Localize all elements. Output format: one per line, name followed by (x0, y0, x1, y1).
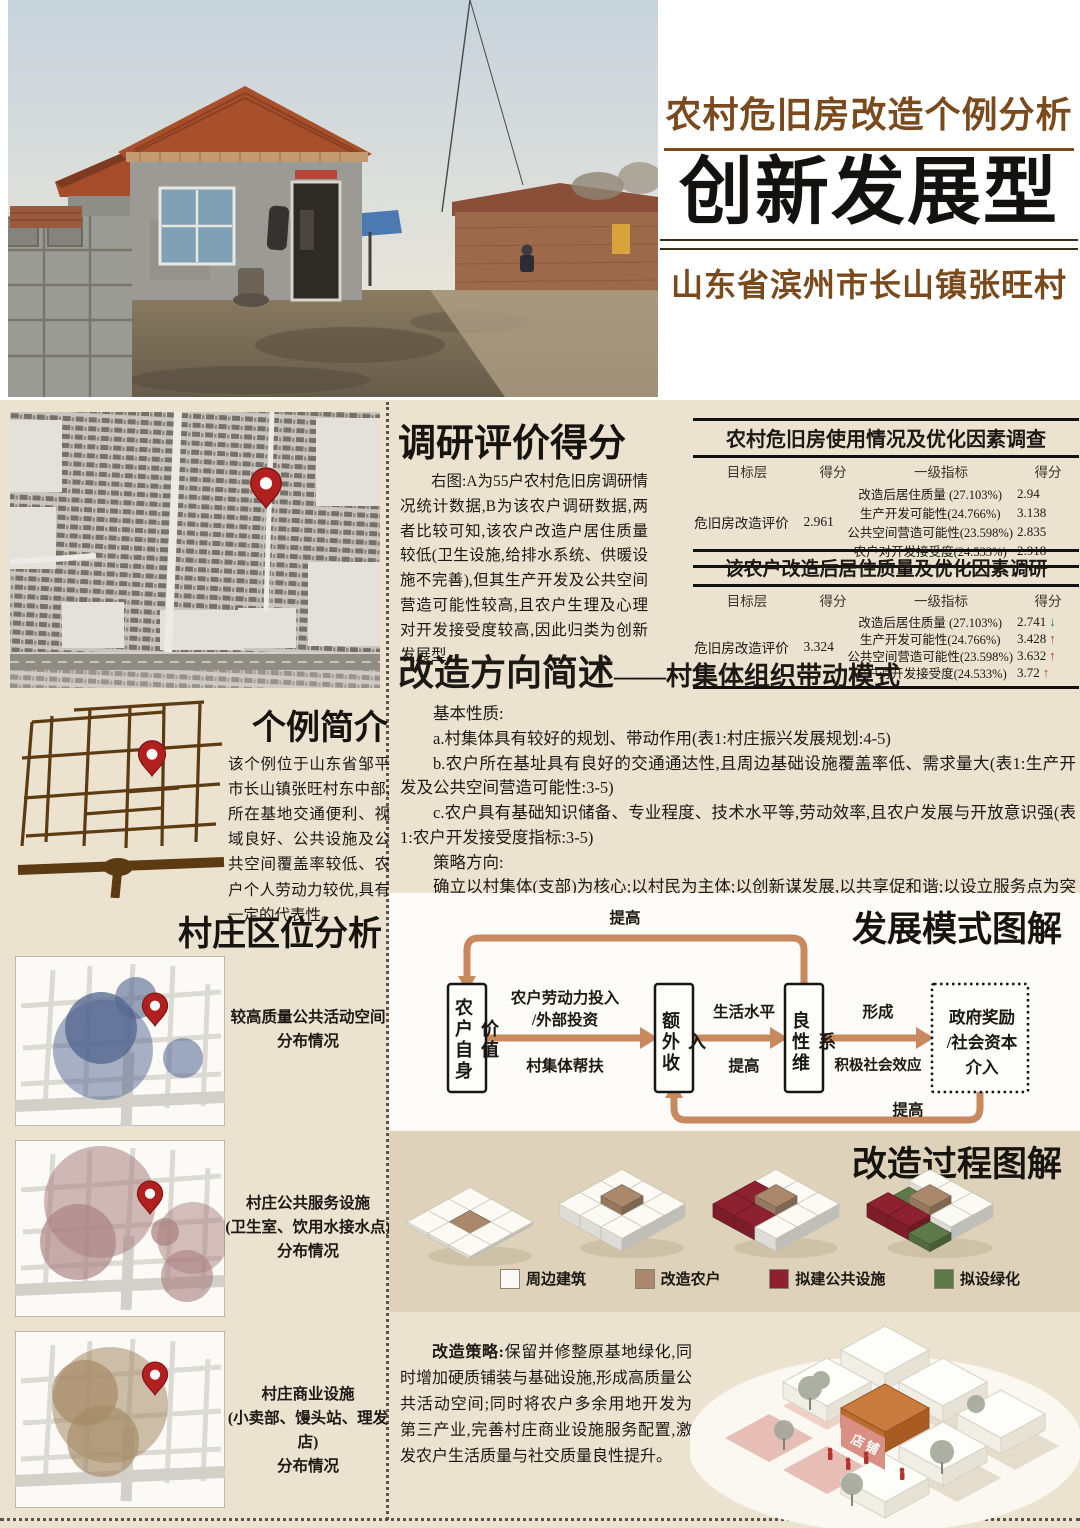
table-header: 目标层 得分 一级指标 得分 (693, 458, 1079, 483)
flow-box-label: 政府奖励 /社会资本 介入 (934, 1006, 1030, 1080)
col-header: 目标层 (693, 461, 801, 481)
map-caption: 较高质量公共活动空间 分布情况 (224, 1006, 392, 1054)
flow-box-label: 额外收入 (657, 1002, 693, 1082)
flow-arrow-label: 形成 (830, 1000, 926, 1022)
render-illustration: 店铺 (690, 1312, 1080, 1528)
location-analysis-heading: 村庄区位分析 (178, 906, 388, 955)
process-legend: 周边建筑 改造农户 拟建公共设施 拟设绿化 (500, 1268, 1020, 1289)
poster-title: 创新发展型 (658, 155, 1080, 233)
col-header: 得分 (801, 461, 865, 481)
legend-swatch (500, 1269, 520, 1289)
site-photo (0, 0, 658, 397)
poster-page: 农村危旧房改造个例分析 创新发展型 山东省滨州市长山镇张旺村 (0, 0, 1080, 1528)
table-row: 改造后居住质量 (27.103%)2.741↓ (847, 613, 1079, 630)
flow-feedback-label: 提高 (595, 906, 655, 928)
strategy-label: 改造策略: (432, 1344, 504, 1361)
direction-heading: 改造方向简述——村集体组织带动模式 (398, 644, 900, 696)
direction-heading-main: 改造方向简述 (398, 653, 614, 693)
location-map-activity (15, 956, 225, 1126)
legend-swatch (769, 1269, 789, 1289)
location-map-services (15, 1140, 225, 1317)
survey-table-a: 农村危旧房使用情况及优化因素调查 目标层 得分 一级指标 得分 危旧房改造评价 … (693, 418, 1079, 568)
title-divider (664, 148, 1074, 151)
process-step-4 (856, 1166, 1004, 1266)
process-step-1 (396, 1174, 544, 1266)
flow-arrow-label: 村集体帮扶 (485, 1054, 645, 1076)
process-step-2 (548, 1166, 696, 1266)
legend-item: 周边建筑 (500, 1268, 586, 1289)
process-step-3 (702, 1166, 850, 1266)
title-double-divider (660, 239, 1078, 250)
table-row: 改造后居住质量 (27.103%)2.94 (847, 484, 1079, 503)
legend-item: 改造农户 (635, 1268, 721, 1289)
direction-item: b.农户所在基址具有良好的交通通达性,且周边基础设施覆盖率低、需求量大(表1:生… (400, 752, 1076, 802)
col-header: 得分 (1017, 461, 1079, 481)
col-header: 得分 (801, 590, 865, 610)
flow-arrow-label: /外部投资 (485, 1008, 645, 1030)
map-pin-icon (139, 741, 166, 776)
poster-subtitle: 山东省滨州市长山镇张旺村 (658, 260, 1080, 306)
legend-item: 拟设绿化 (934, 1268, 1020, 1289)
strategy-label: 策略方向: (400, 851, 1076, 876)
legend-label: 拟设绿化 (960, 1268, 1020, 1289)
direction-item: c.农户具有基础知识储备、专业程度、技术水平等,劳动效率,且农户发展与开放意识强… (400, 801, 1076, 851)
table-title: 该农户改造后居住质量及优化因素调研 (693, 549, 1079, 587)
direction-heading-suffix: ——村集体组织带动模式 (614, 662, 900, 691)
location-map-commerce (15, 1331, 225, 1508)
survey-heading: 调研评价得分 (398, 412, 626, 467)
strategy-body: 保留并修整原基地绿化,同时增加硬质铺装与基础设施,形成高质量公共活动空间;同时将… (400, 1344, 692, 1465)
flow-arrow-label: 生活水平 (698, 1000, 790, 1022)
renovation-strategy: 改造策略:保留并修整原基地绿化,同时增加硬质铺装与基础设施,形成高质量公共活动空… (400, 1340, 692, 1470)
legend-swatch (934, 1269, 954, 1289)
flow-arrow-label: 积极社会效应 (830, 1054, 926, 1075)
legend-swatch (635, 1269, 655, 1289)
legend-label: 周边建筑 (526, 1268, 586, 1289)
flow-arrow-label: 提高 (698, 1054, 790, 1076)
map-caption: 村庄商业设施 (小卖部、馒头站、理发店) 分布情况 (224, 1383, 392, 1479)
aerial-map (10, 412, 380, 688)
table-title: 农村危旧房使用情况及优化因素调查 (693, 418, 1079, 458)
legend-label: 改造农户 (661, 1268, 721, 1289)
map-caption: 村庄公共服务设施 (卫生室、饮用水接水点) 分布情况 (224, 1192, 392, 1264)
legend-label: 拟建公共设施 (795, 1268, 885, 1289)
col-header: 一级指标 (865, 590, 1017, 610)
case-intro-heading: 个例简介 (232, 700, 388, 749)
table-row: 生产开发可能性(24.766%)3.138 (847, 503, 1079, 522)
road-map (14, 696, 226, 898)
col-header: 目标层 (693, 590, 801, 610)
case-intro-body: 该个例位于山东省邹平市长山镇张旺村东中部,所在基地交通便利、视域良好、公共设施及… (228, 752, 390, 928)
direction-item: a.村集体具有较好的规划、带动作用(表1:村庄振兴发展规划:4-5) (400, 727, 1076, 752)
poster-kicker: 农村危旧房改造个例分析 (658, 86, 1080, 138)
col-header: 得分 (1017, 590, 1079, 610)
flow-feedback-label: 提高 (878, 1098, 938, 1120)
flow-box-label: 农户自身价值 (450, 988, 486, 1092)
flow-box-label: 良性维系 (787, 1002, 823, 1082)
basic-label: 基本性质: (400, 702, 1076, 727)
flow-arrow-label: 农户劳动力投入 (485, 986, 645, 1008)
table-row: 公共空间营造可能性(23.598%)2.835 (847, 522, 1079, 541)
col-header: 一级指标 (865, 461, 1017, 481)
legend-item: 拟建公共设施 (769, 1268, 885, 1289)
table-header: 目标层 得分 一级指标 得分 (693, 587, 1079, 612)
title-block: 农村危旧房改造个例分析 创新发展型 山东省滨州市长山镇张旺村 (658, 0, 1080, 397)
survey-body: 右图:A为55户农村危旧房调研情况统计数据,B为该农户调研数据,两者比较可知,该… (400, 470, 648, 668)
